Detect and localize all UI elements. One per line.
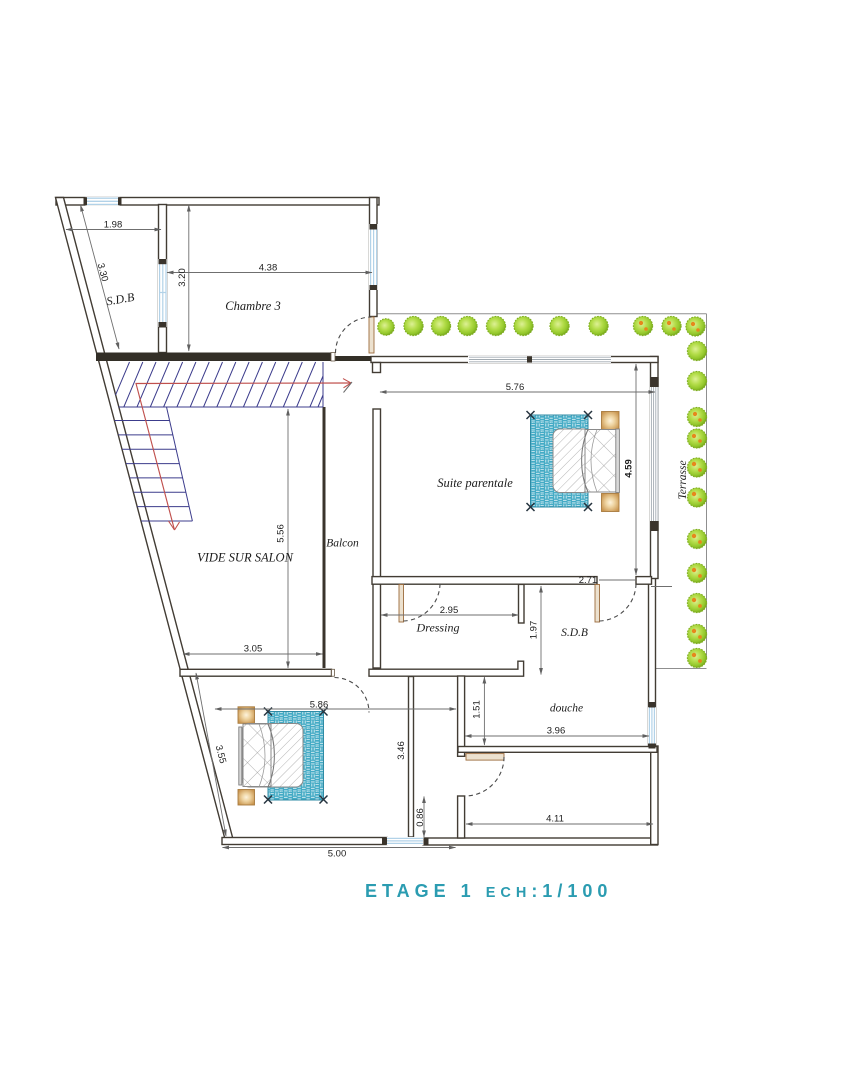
svg-text:5.00: 5.00	[328, 849, 347, 860]
svg-text:5.56: 5.56	[276, 524, 287, 543]
svg-text:0.86: 0.86	[415, 808, 426, 827]
svg-text:1.51: 1.51	[472, 700, 483, 719]
svg-text:1.97: 1.97	[529, 621, 540, 640]
svg-text:3.46: 3.46	[396, 741, 407, 760]
svg-text:douche: douche	[550, 703, 583, 715]
svg-text:5.76: 5.76	[506, 382, 525, 393]
svg-text:Chambre 3: Chambre 3	[225, 299, 280, 313]
svg-text:3.05: 3.05	[244, 644, 263, 655]
svg-text:2.71: 2.71	[579, 575, 598, 586]
svg-text:S.D.B: S.D.B	[561, 627, 588, 639]
svg-text:Balcon: Balcon	[326, 538, 359, 550]
svg-text:Terrasse: Terrasse	[677, 460, 689, 499]
svg-text:3.20: 3.20	[177, 268, 188, 287]
svg-text:4.38: 4.38	[259, 263, 278, 274]
svg-text:4.11: 4.11	[546, 814, 564, 825]
svg-text:Suite parentale: Suite parentale	[437, 476, 513, 490]
svg-text:5.86: 5.86	[310, 700, 329, 711]
svg-text:4.59: 4.59	[624, 459, 635, 478]
svg-text:Dressing: Dressing	[416, 621, 460, 635]
svg-text:2.95: 2.95	[440, 605, 459, 616]
svg-text:VIDE SUR SALON: VIDE SUR SALON	[197, 551, 293, 565]
svg-text:1.98: 1.98	[104, 220, 123, 231]
svg-text:3.96: 3.96	[547, 726, 566, 737]
